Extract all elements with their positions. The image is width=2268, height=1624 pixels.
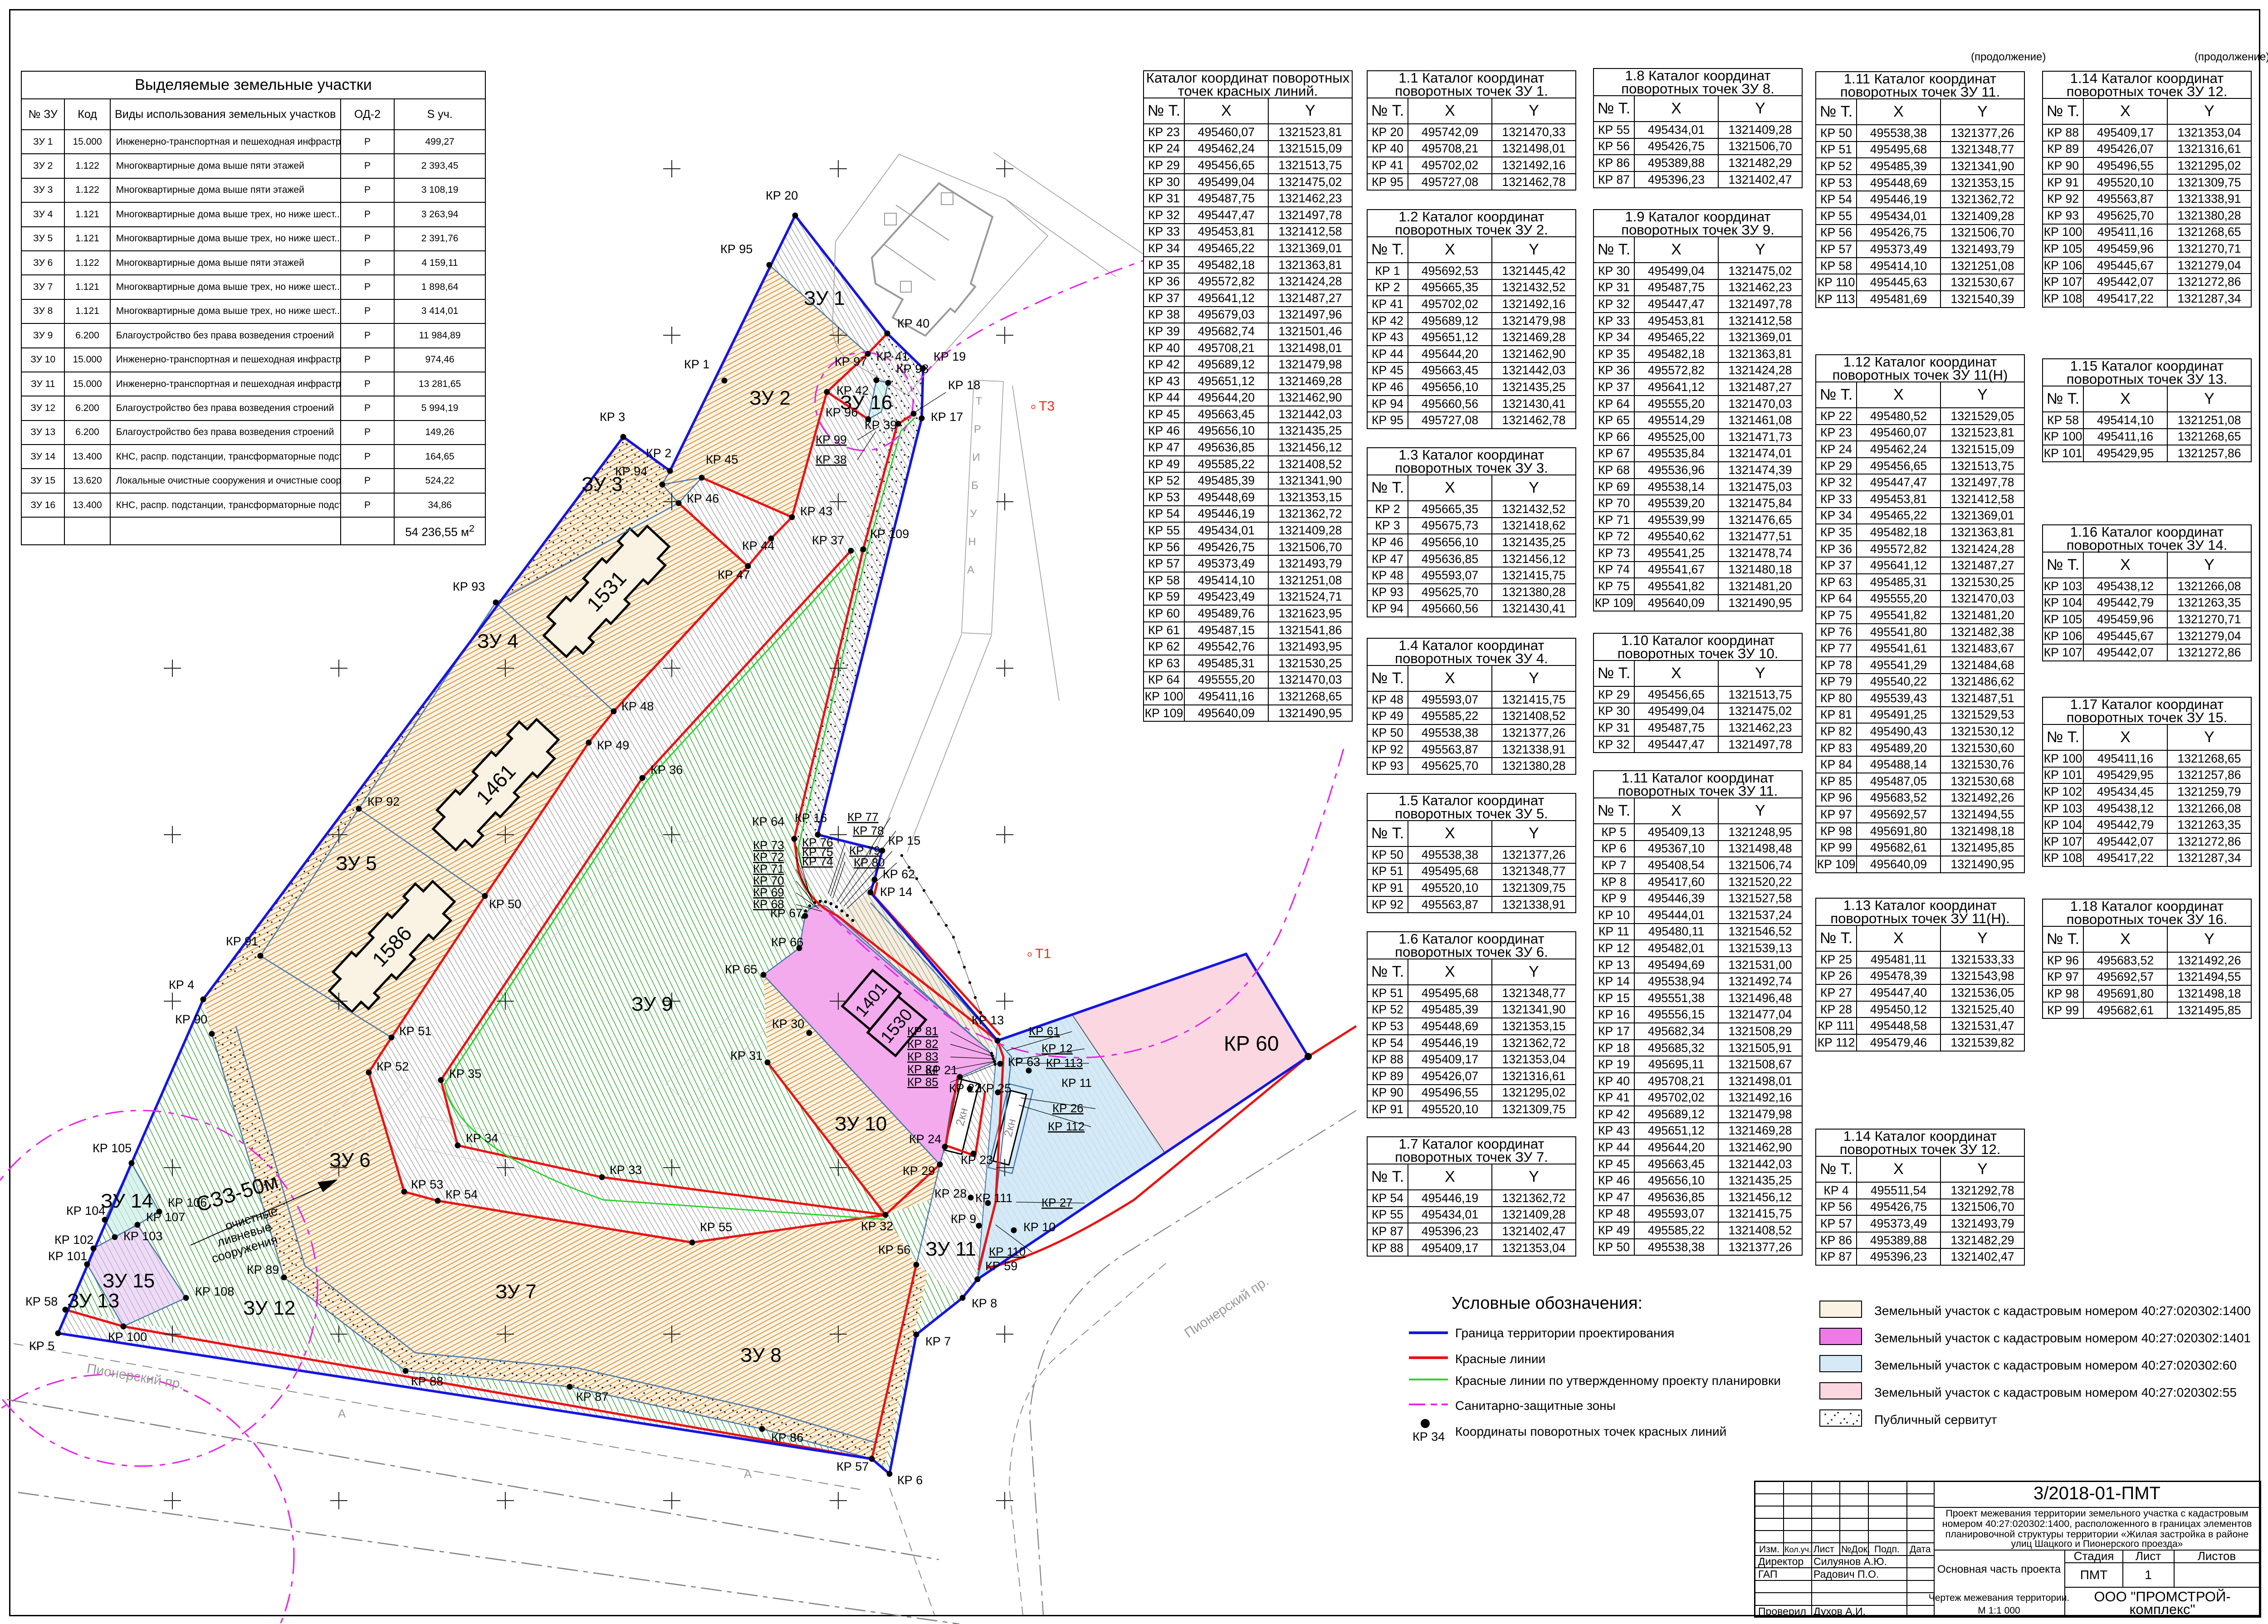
svg-text:КР 77: КР 77	[847, 810, 879, 824]
svg-text:ЗУ 1: ЗУ 1	[804, 287, 845, 309]
svg-text:КР 100: КР 100	[108, 1330, 147, 1344]
svg-text:КР 26: КР 26	[1052, 1101, 1084, 1115]
svg-text:КР 93: КР 93	[453, 580, 485, 593]
svg-text:ЗУ 6: ЗУ 6	[329, 1149, 371, 1171]
svg-text:комплекс": комплекс"	[2130, 1601, 2195, 1616]
svg-text:КР 22: КР 22	[949, 1081, 981, 1095]
svg-text:КР 31: КР 31	[730, 1049, 763, 1062]
svg-text:3/2018-01-ПМТ: 3/2018-01-ПМТ	[2033, 1483, 2160, 1503]
svg-text:И: И	[972, 451, 980, 464]
svg-text:КР 86: КР 86	[771, 1431, 803, 1444]
svg-text:КР 39: КР 39	[865, 418, 897, 432]
svg-text:Радович П.О.: Радович П.О.	[1813, 1568, 1879, 1580]
svg-text:КР 65: КР 65	[725, 963, 757, 976]
svg-text:КР 110: КР 110	[989, 1245, 1026, 1258]
svg-text:КР 103: КР 103	[123, 1229, 162, 1243]
svg-text:КР 5: КР 5	[29, 1339, 54, 1353]
svg-text:ПМТ: ПМТ	[2080, 1568, 2108, 1582]
svg-text:ЗУ 4: ЗУ 4	[477, 630, 518, 652]
svg-text:Р: Р	[974, 423, 981, 435]
svg-text:КР 14: КР 14	[880, 885, 912, 899]
svg-text:Чертеж межевания территории.: Чертеж межевания территории.	[1929, 1593, 2070, 1603]
svg-text:№Док.: №Док.	[1841, 1544, 1870, 1555]
svg-text:ЗУ 3: ЗУ 3	[582, 473, 623, 495]
svg-text:Стадия: Стадия	[2074, 1549, 2114, 1563]
svg-text:КР 19: КР 19	[934, 350, 966, 363]
svg-text:КР 46: КР 46	[687, 492, 719, 505]
svg-text:планировочной структуры террит: планировочной структуры территории «Жила…	[1945, 1529, 2249, 1540]
svg-text:КР 99: КР 99	[816, 433, 847, 446]
svg-text:Пионерский пр.: Пионерский пр.	[86, 1361, 185, 1392]
svg-text:КР 17: КР 17	[931, 410, 963, 424]
svg-text:Основная часть проекта: Основная часть проекта	[1937, 1563, 2061, 1575]
svg-text:КР 82: КР 82	[907, 1037, 938, 1051]
svg-text:КР 33: КР 33	[610, 1163, 642, 1177]
svg-text:КР 49: КР 49	[597, 739, 629, 752]
svg-text:КР 113: КР 113	[1046, 1056, 1083, 1070]
svg-text:КР 43: КР 43	[800, 504, 832, 518]
svg-text:ЗУ 16: ЗУ 16	[840, 391, 892, 414]
svg-text:КР 56: КР 56	[878, 1243, 910, 1257]
svg-text:КР 85: КР 85	[907, 1075, 938, 1089]
svg-text:Т1: Т1	[1035, 946, 1051, 961]
svg-text:КР 24: КР 24	[909, 1132, 941, 1146]
svg-text:КР 11: КР 11	[1061, 1076, 1092, 1090]
svg-text:А: А	[338, 1407, 346, 1420]
svg-text:Духов А.И.: Духов А.И.	[1813, 1605, 1866, 1616]
svg-text:А: А	[744, 1467, 752, 1481]
svg-text:КР 63: КР 63	[1008, 1055, 1040, 1069]
svg-text:КР 44: КР 44	[742, 539, 774, 553]
svg-text:КР 92: КР 92	[367, 795, 400, 808]
svg-text:КР 109: КР 109	[870, 527, 909, 541]
svg-text:КР 98: КР 98	[896, 362, 929, 376]
svg-text:КР 25: КР 25	[979, 1081, 1011, 1095]
svg-text:КР 34: КР 34	[1413, 1430, 1445, 1443]
svg-text:КР 35: КР 35	[449, 1067, 481, 1081]
svg-text:КР 34: КР 34	[466, 1131, 498, 1145]
svg-text:ЗУ 13: ЗУ 13	[67, 1290, 119, 1312]
svg-text:КР 20: КР 20	[766, 189, 798, 202]
svg-text:КР 1: КР 1	[684, 357, 709, 371]
svg-text:КР 81: КР 81	[907, 1024, 938, 1038]
svg-text:КР 87: КР 87	[576, 1390, 608, 1404]
svg-text:КР 28: КР 28	[934, 1187, 967, 1200]
svg-text:КР 4: КР 4	[169, 978, 194, 992]
svg-text:КР 10: КР 10	[1023, 1220, 1056, 1234]
svg-text:Листов: Листов	[2198, 1549, 2236, 1563]
svg-text:КР 23: КР 23	[961, 1153, 993, 1167]
svg-text:КР 7: КР 7	[925, 1335, 951, 1348]
svg-text:КР 112: КР 112	[1048, 1120, 1085, 1133]
svg-text:ЗУ 7: ЗУ 7	[495, 1281, 537, 1303]
svg-text:КР 37: КР 37	[812, 533, 844, 547]
svg-text:КР 41: КР 41	[876, 350, 909, 363]
svg-text:КР 64: КР 64	[752, 815, 784, 828]
svg-text:КР 101: КР 101	[48, 1249, 87, 1263]
svg-text:КР 15: КР 15	[888, 834, 920, 847]
svg-text:КР 13: КР 13	[972, 1013, 1004, 1027]
svg-text:КР 9: КР 9	[951, 1212, 976, 1226]
svg-text:КР 50: КР 50	[489, 897, 521, 911]
svg-text:КР 97: КР 97	[835, 355, 867, 368]
svg-text:КР 40: КР 40	[897, 317, 929, 330]
svg-text:улиц Шацкого и Пионерского про: улиц Шацкого и Пионерского проезда»	[2011, 1539, 2183, 1549]
svg-text:КР 60: КР 60	[1224, 1032, 1279, 1055]
svg-text:КР 57: КР 57	[836, 1460, 869, 1473]
svg-text:КР 3: КР 3	[600, 410, 625, 424]
svg-text:КР 38: КР 38	[816, 453, 847, 466]
svg-text:КР 30: КР 30	[772, 1017, 804, 1031]
svg-text:ГАП: ГАП	[1758, 1568, 1778, 1580]
svg-text:ЗУ 2: ЗУ 2	[749, 387, 791, 409]
svg-text:КР 8: КР 8	[972, 1296, 997, 1310]
svg-text:КР 91: КР 91	[226, 934, 258, 948]
svg-text:КР 111: КР 111	[975, 1191, 1012, 1205]
svg-text:КР 95: КР 95	[720, 242, 753, 256]
svg-text:1: 1	[2145, 1568, 2152, 1582]
svg-text:КР 51: КР 51	[399, 1024, 431, 1038]
svg-text:КР 6: КР 6	[897, 1473, 923, 1487]
svg-text:Н: Н	[968, 536, 976, 548]
svg-text:КР 54: КР 54	[445, 1188, 478, 1201]
svg-text:КР 18: КР 18	[948, 378, 980, 392]
svg-text:КР 88: КР 88	[411, 1375, 443, 1388]
svg-text:ЗУ 8: ЗУ 8	[740, 1344, 782, 1366]
svg-text:ЗУ 15: ЗУ 15	[103, 1270, 155, 1292]
svg-text:Дата: Дата	[1910, 1544, 1931, 1555]
svg-text:КР 84: КР 84	[907, 1062, 938, 1076]
svg-text:Проект межевания территории зе: Проект межевания территории земельного у…	[1945, 1508, 2248, 1519]
svg-text:КР 29: КР 29	[903, 1164, 935, 1178]
svg-text:КР 55: КР 55	[700, 1220, 732, 1234]
svg-text:КР 102: КР 102	[54, 1233, 93, 1247]
svg-text:КР 107: КР 107	[146, 1210, 185, 1224]
svg-text:КР 104: КР 104	[66, 1204, 105, 1218]
svg-text:КР 58: КР 58	[25, 1295, 58, 1308]
svg-text:А: А	[967, 564, 974, 576]
svg-text:КР 53: КР 53	[411, 1178, 443, 1191]
svg-text:КР 2: КР 2	[646, 446, 671, 460]
svg-text:ЗУ 12: ЗУ 12	[243, 1297, 295, 1319]
svg-text:КР 80: КР 80	[854, 856, 885, 869]
svg-text:ЗУ 10: ЗУ 10	[835, 1113, 887, 1135]
svg-text:Директор: Директор	[1758, 1556, 1804, 1567]
svg-text:КР 83: КР 83	[907, 1050, 938, 1063]
svg-text:КР 32: КР 32	[861, 1219, 893, 1233]
svg-text:КР 61: КР 61	[1029, 1024, 1060, 1038]
svg-text:КР 59: КР 59	[985, 1259, 1017, 1273]
svg-text:У: У	[970, 508, 977, 520]
svg-text:номером 40:27:020302:1400, рас: номером 40:27:020302:1400, расположенног…	[1942, 1518, 2252, 1529]
svg-text:Проверил: Проверил	[1758, 1605, 1806, 1616]
svg-text:Кол.уч.: Кол.уч.	[1784, 1545, 1811, 1554]
svg-text:Изм.: Изм.	[1759, 1544, 1779, 1555]
svg-text:ЗУ 14: ЗУ 14	[101, 1190, 153, 1212]
svg-text:Подп.: Подп.	[1874, 1544, 1900, 1555]
svg-text:КР 74: КР 74	[802, 855, 833, 868]
svg-text:КР 66: КР 66	[771, 935, 803, 949]
svg-text:КР 108: КР 108	[195, 1285, 234, 1298]
svg-text:КР 16: КР 16	[795, 811, 827, 825]
svg-text:КР 78: КР 78	[853, 824, 884, 837]
svg-text:КР 48: КР 48	[621, 699, 654, 713]
svg-text:КР 45: КР 45	[706, 453, 738, 466]
svg-text:КР 47: КР 47	[718, 568, 750, 582]
svg-text:Лист: Лист	[2136, 1549, 2161, 1563]
svg-text:Б: Б	[971, 479, 978, 492]
svg-text:КР 105: КР 105	[93, 1141, 132, 1155]
svg-text:ЗУ 11: ЗУ 11	[925, 1238, 976, 1260]
svg-text:Лист: Лист	[1813, 1544, 1834, 1555]
svg-text:ЗУ 5: ЗУ 5	[336, 852, 377, 875]
svg-text:КР 89: КР 89	[247, 1263, 279, 1277]
svg-text:КР 62: КР 62	[883, 867, 915, 881]
svg-text:КР 36: КР 36	[650, 763, 683, 777]
svg-text:КР 52: КР 52	[376, 1060, 409, 1073]
svg-text:ЗУ 9: ЗУ 9	[631, 993, 673, 1015]
svg-text:Т3: Т3	[1039, 399, 1055, 414]
svg-text:КР 90: КР 90	[175, 1013, 207, 1026]
svg-text:Пионерский пр.: Пионерский пр.	[1182, 1274, 1271, 1341]
svg-text:Силуянов А.Ю.: Силуянов А.Ю.	[1813, 1556, 1887, 1567]
svg-text:КР 68: КР 68	[753, 897, 784, 911]
svg-text:М 1:1 000: М 1:1 000	[1978, 1605, 2020, 1616]
svg-text:Т: Т	[976, 395, 982, 407]
